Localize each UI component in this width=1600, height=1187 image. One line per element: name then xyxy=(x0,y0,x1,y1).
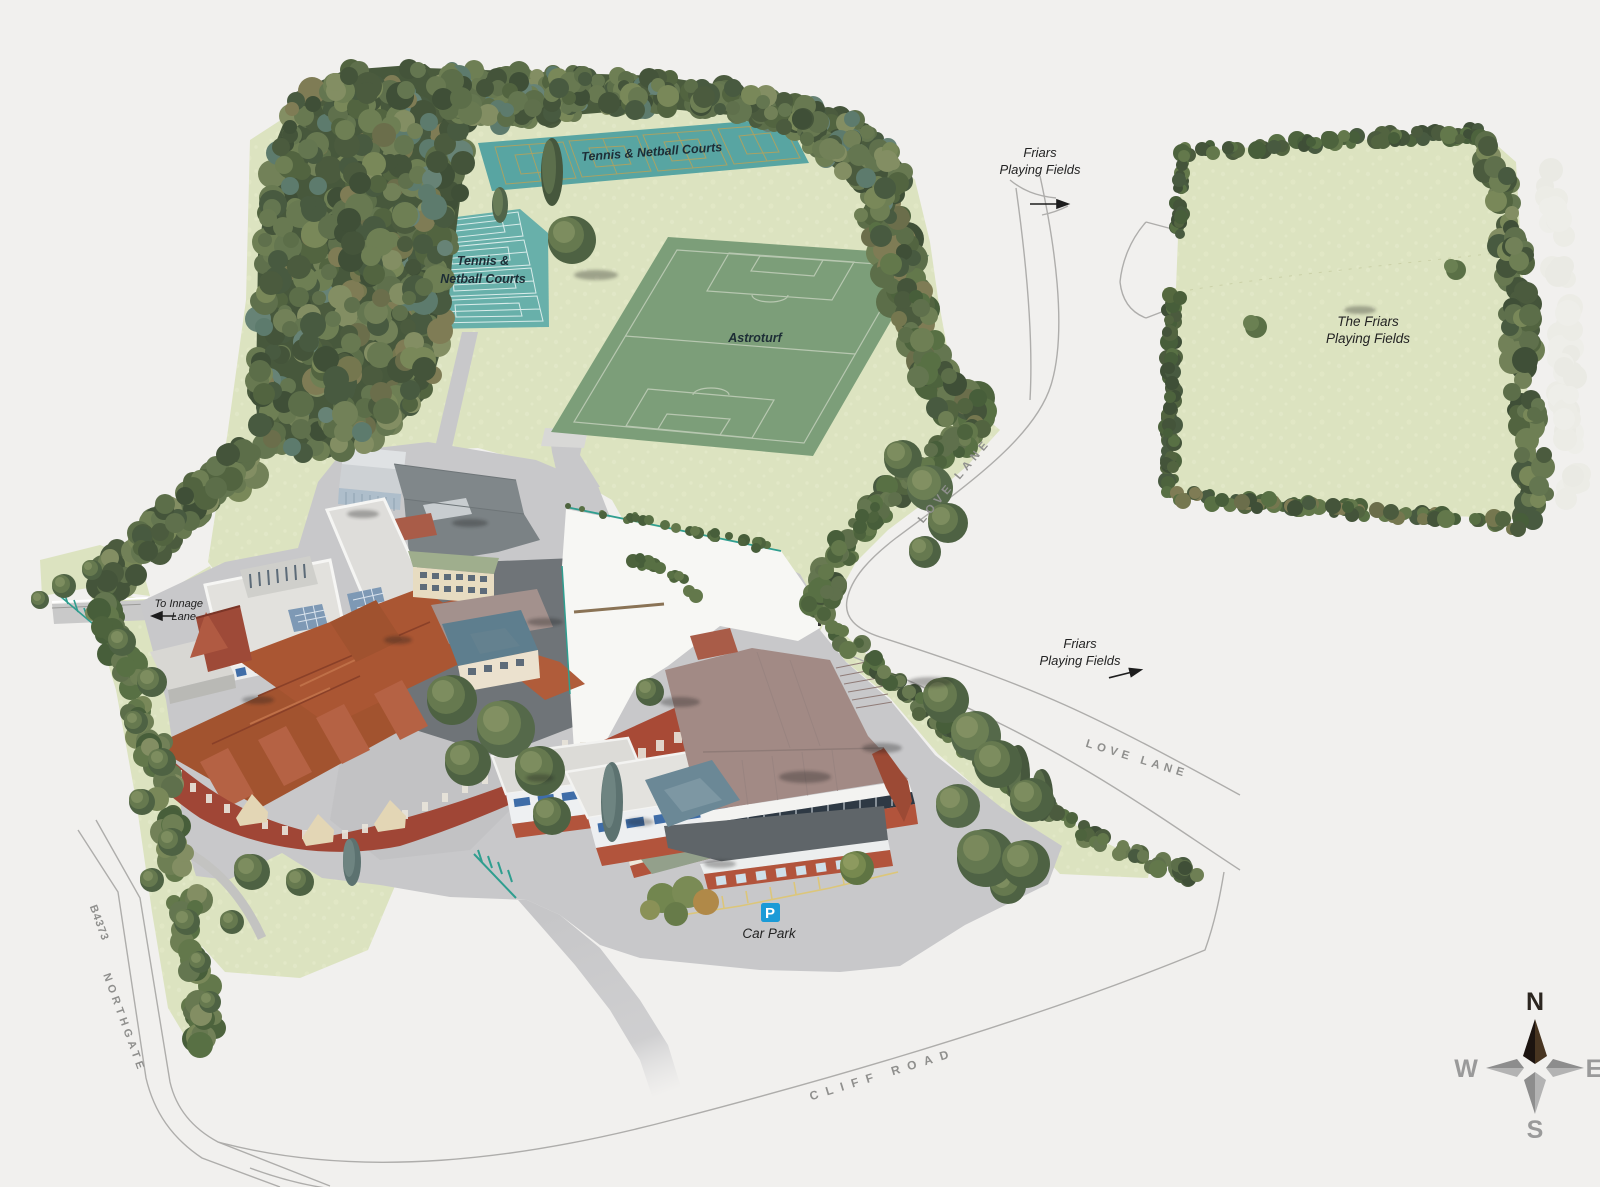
svg-text:Playing Fields: Playing Fields xyxy=(1000,162,1081,177)
svg-text:The Friars: The Friars xyxy=(1337,314,1399,329)
svg-text:P: P xyxy=(765,905,775,922)
svg-text:N: N xyxy=(1526,988,1544,1016)
svg-text:E: E xyxy=(1586,1055,1600,1083)
svg-text:Playing Fields: Playing Fields xyxy=(1326,331,1410,346)
svg-text:To Innage: To Innage xyxy=(154,598,203,610)
svg-text:S: S xyxy=(1527,1116,1544,1144)
svg-text:Car Park: Car Park xyxy=(742,926,797,941)
svg-text:Friars: Friars xyxy=(1063,636,1097,651)
svg-text:Lane: Lane xyxy=(172,611,196,623)
svg-text:Netball Courts: Netball Courts xyxy=(440,272,525,286)
svg-text:Tennis &: Tennis & xyxy=(457,254,509,268)
svg-text:Friars: Friars xyxy=(1023,145,1057,160)
svg-text:Astroturf: Astroturf xyxy=(727,331,783,345)
svg-text:Playing Fields: Playing Fields xyxy=(1040,653,1121,668)
svg-text:W: W xyxy=(1454,1055,1478,1083)
